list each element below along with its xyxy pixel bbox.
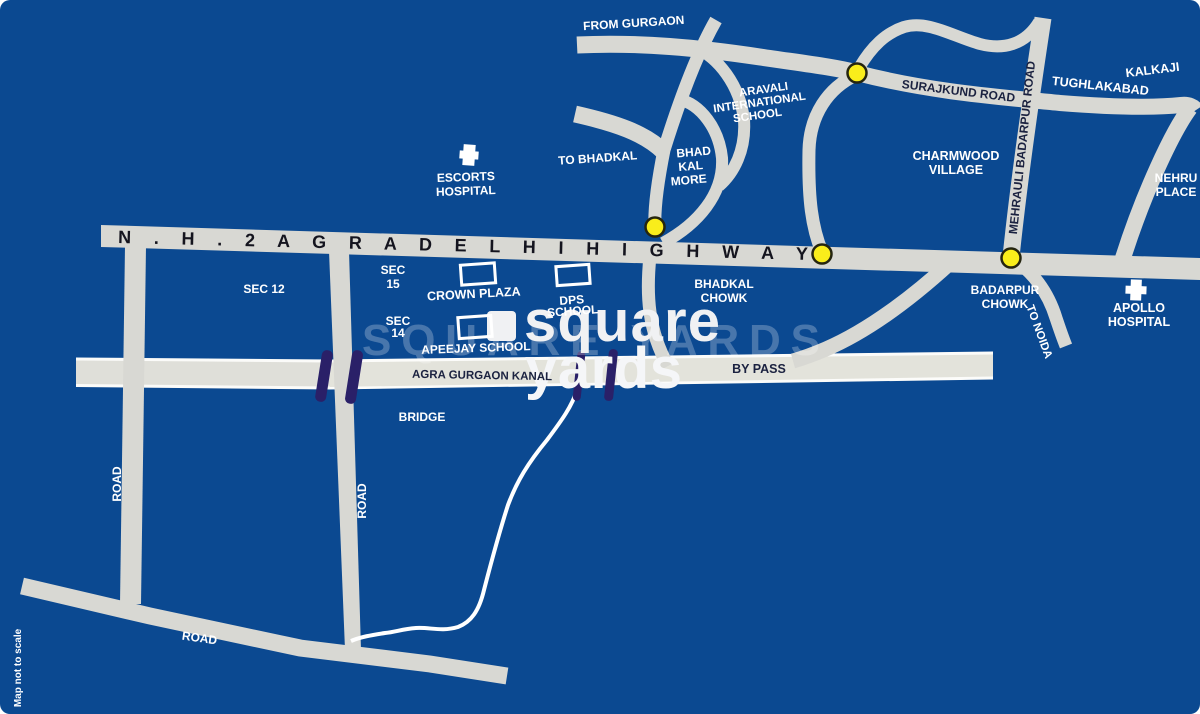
svg-text:AGRA GURGAON KANAL: AGRA GURGAON KANAL [412, 369, 552, 383]
svg-text:yards: yards [525, 336, 682, 401]
svg-text:Map not to scale: Map not to scale [13, 628, 24, 707]
svg-text:APOLLO: APOLLO [1113, 301, 1165, 315]
svg-text:BY PASS: BY PASS [732, 362, 786, 376]
svg-text:CHOWK: CHOWK [982, 297, 1029, 311]
svg-text:NEHRU: NEHRU [1155, 171, 1198, 185]
svg-text:VILLAGE: VILLAGE [929, 163, 983, 177]
svg-text:CHOWK: CHOWK [701, 291, 748, 305]
svg-text:SEC 12: SEC 12 [243, 282, 285, 296]
svg-text:BHADKAL: BHADKAL [694, 277, 753, 291]
svg-text:ROAD: ROAD [355, 483, 369, 519]
svg-text:HOSPITAL: HOSPITAL [436, 183, 496, 199]
svg-text:HOSPITAL: HOSPITAL [1108, 315, 1171, 329]
svg-text:15: 15 [386, 277, 400, 291]
svg-text:CHARMWOOD: CHARMWOOD [913, 149, 1000, 163]
svg-text:ROAD: ROAD [110, 466, 124, 502]
svg-text:BRIDGE: BRIDGE [399, 410, 446, 424]
svg-text:PLACE: PLACE [1156, 185, 1197, 199]
svg-text:14: 14 [391, 326, 405, 340]
svg-text:BADARPUR: BADARPUR [971, 283, 1040, 297]
svg-text:SEC: SEC [381, 263, 406, 277]
